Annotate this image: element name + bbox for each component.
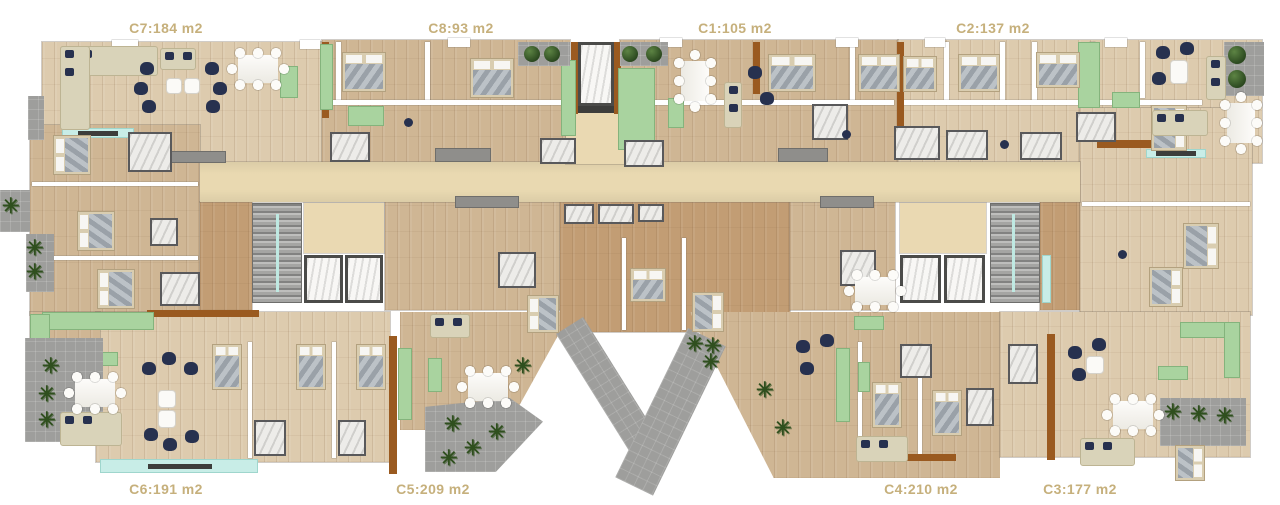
desk-chair (1118, 250, 1127, 259)
bathroom (966, 388, 994, 426)
shrub-icon (646, 46, 662, 62)
unit-area-label-c4: C4:210 m2 (884, 481, 958, 497)
bed (692, 292, 724, 332)
ottoman (158, 390, 176, 408)
bed (1036, 52, 1080, 88)
kitchen-counter (320, 44, 333, 110)
armchair (760, 92, 774, 105)
plant-icon: ✳ (444, 414, 462, 435)
kitchen-counter (42, 312, 154, 330)
wardrobe (778, 148, 828, 162)
stair-rail (276, 214, 279, 292)
plant-icon: ✳ (38, 384, 56, 405)
kitchen-counter (1224, 322, 1240, 378)
kitchen-island (858, 362, 870, 392)
elevator-sill (578, 106, 614, 113)
armchair (185, 430, 199, 443)
bed (77, 211, 115, 251)
bed (768, 54, 816, 92)
terrace (28, 96, 44, 140)
elevator-right-b (944, 255, 985, 303)
plant-icon: ✳ (1164, 402, 1182, 423)
bathroom (946, 130, 988, 160)
dining-table (225, 46, 291, 92)
wall (425, 42, 430, 100)
bed (958, 54, 1000, 92)
bathroom (128, 132, 172, 172)
core-lobby-left (304, 203, 384, 253)
bed (470, 58, 514, 98)
plant-icon: ✳ (2, 196, 20, 217)
ottoman (1086, 356, 1104, 374)
ottoman (184, 78, 200, 94)
unit-area-label-c1: C1:105 m2 (698, 20, 772, 36)
dining-table (1100, 392, 1166, 438)
plant-icon: ✳ (488, 422, 506, 443)
wall (48, 256, 198, 260)
plant-icon: ✳ (26, 238, 44, 259)
plant-icon: ✳ (26, 262, 44, 283)
armchair (142, 100, 156, 113)
bathroom (900, 344, 932, 378)
plant-icon: ✳ (702, 352, 720, 373)
dining-table (672, 48, 718, 114)
unit-area-label-c2: C2:137 m2 (956, 20, 1030, 36)
bathroom (498, 252, 536, 288)
kitchen-island (1158, 366, 1188, 380)
wall (622, 238, 626, 330)
kitchen-counter (836, 348, 850, 422)
desk-chair (1000, 140, 1009, 149)
sofa (856, 436, 908, 462)
bed (903, 56, 937, 92)
bathroom (564, 204, 594, 224)
bathroom (1076, 112, 1116, 142)
armchair (206, 100, 220, 113)
armchair (800, 362, 814, 375)
floor-plan-canvas: ✳ ✳ ✳ ✳ ✳ ✳ ✳ ✳ ✳ ✳ ✳ ✳ ✳ ✳ ✳ ✳ ✳ ✳ ✳ C7… (0, 0, 1280, 505)
bathroom (1008, 344, 1038, 384)
glass-balustrade (1042, 255, 1051, 303)
shrub-icon (1228, 70, 1246, 88)
bed (97, 269, 135, 309)
armchair (205, 62, 219, 75)
armchair (162, 352, 176, 365)
plant-icon: ✳ (774, 418, 792, 439)
armchair (1092, 338, 1106, 351)
dining-table (62, 370, 128, 416)
armchair (163, 438, 177, 451)
kitchen-counter (618, 68, 655, 150)
bed (1149, 267, 1183, 307)
bed (356, 344, 386, 390)
bathroom (338, 420, 366, 456)
wardrobe (435, 148, 491, 162)
unit-area-label-c5: C5:209 m2 (396, 481, 470, 497)
plant-icon: ✳ (440, 448, 458, 469)
bed (630, 268, 666, 302)
armchair (134, 82, 148, 95)
shrub-icon (1228, 46, 1246, 64)
armchair (1152, 72, 1166, 85)
bathroom (598, 204, 634, 224)
door-frame (147, 310, 259, 317)
armchair (144, 428, 158, 441)
tv-unit (1156, 151, 1196, 156)
bed (296, 344, 326, 390)
unit-area-label-c6: C6:191 m2 (129, 481, 203, 497)
staircase-right (990, 203, 1040, 303)
stair-rail (1012, 214, 1015, 292)
armchair (1156, 46, 1170, 59)
ottoman (166, 78, 182, 94)
wall (1000, 42, 1005, 100)
bathroom (160, 272, 200, 306)
kitchen-counter (561, 60, 576, 136)
elevator-top-center (578, 42, 614, 106)
armchair (140, 62, 154, 75)
dining-table (1218, 90, 1264, 156)
armchair (1072, 368, 1086, 381)
bed (53, 135, 91, 175)
facade-notch (448, 38, 470, 47)
tv-unit (148, 464, 212, 469)
ottoman (1170, 60, 1188, 84)
sofa (60, 46, 90, 130)
bed (212, 344, 242, 390)
armchair (184, 362, 198, 375)
armchair (1180, 42, 1194, 55)
wall (682, 238, 686, 330)
sofa (1080, 438, 1135, 466)
wall (622, 100, 894, 105)
wardrobe (168, 151, 226, 163)
dining-table (455, 364, 521, 410)
plant-icon: ✳ (1216, 406, 1234, 427)
plant-icon: ✳ (756, 380, 774, 401)
unit-area-label-c8: C8:93 m2 (428, 20, 493, 36)
plant-icon: ✳ (38, 410, 56, 431)
wall (1140, 42, 1145, 98)
bathroom (624, 140, 664, 167)
sofa (430, 314, 470, 338)
wall (332, 100, 570, 105)
unit-area-label-c3: C3:177 m2 (1043, 481, 1117, 497)
armchair (213, 82, 227, 95)
wall (944, 42, 949, 100)
sofa (60, 412, 122, 446)
wardrobe (820, 196, 874, 208)
sofa (160, 48, 196, 70)
unit-area-label-c7: C7:184 m2 (129, 20, 203, 36)
facade-notch (1105, 38, 1127, 47)
plant-icon: ✳ (42, 356, 60, 377)
bed (932, 390, 962, 436)
wall (336, 42, 341, 100)
plant-icon: ✳ (464, 438, 482, 459)
unit-c6-upper-floor (200, 202, 252, 310)
bathroom (330, 132, 370, 162)
facade-notch (836, 38, 858, 47)
kitchen-island (428, 358, 442, 392)
armchair (820, 334, 834, 347)
plant-icon: ✳ (686, 334, 704, 355)
bed (527, 295, 559, 333)
shrub-icon (524, 46, 540, 62)
bed (1183, 223, 1219, 269)
bathroom (254, 420, 286, 456)
armchair (142, 362, 156, 375)
wall (332, 342, 336, 458)
bathroom (894, 126, 940, 160)
corridor-floor (200, 162, 1080, 202)
door-frame (1047, 334, 1055, 460)
sofa (1152, 110, 1208, 136)
door-frame (389, 336, 397, 474)
elevator-left-a (304, 255, 343, 303)
bathroom (150, 218, 178, 246)
wardrobe (455, 196, 519, 208)
kitchen-counter (398, 348, 412, 420)
bed (342, 52, 386, 92)
wall (1082, 202, 1250, 206)
wall (248, 342, 252, 458)
ottoman (158, 410, 176, 428)
desk-chair (404, 118, 413, 127)
bathroom (1020, 132, 1062, 160)
kitchen-rug (854, 316, 884, 330)
kitchen-counter (1078, 42, 1100, 108)
plant-icon: ✳ (514, 356, 532, 377)
shrub-icon (622, 46, 638, 62)
desk-chair (842, 130, 851, 139)
wall (850, 42, 855, 100)
shrub-icon (544, 46, 560, 62)
dining-table (842, 268, 908, 314)
core-lobby-right (900, 203, 986, 253)
kitchen-island (1112, 92, 1140, 108)
elevator-left-b (345, 255, 383, 303)
bed (1175, 445, 1205, 481)
sofa (724, 82, 742, 128)
plant-icon: ✳ (1190, 404, 1208, 425)
armchair (748, 66, 762, 79)
armchair (796, 340, 810, 353)
facade-notch (925, 38, 945, 47)
bed (858, 54, 900, 92)
facade-notch (300, 40, 320, 49)
bathroom (638, 204, 664, 222)
bathroom (540, 138, 576, 164)
bed (872, 382, 902, 428)
wall (32, 182, 198, 186)
armchair (1068, 346, 1082, 359)
kitchen-rug (348, 106, 384, 126)
